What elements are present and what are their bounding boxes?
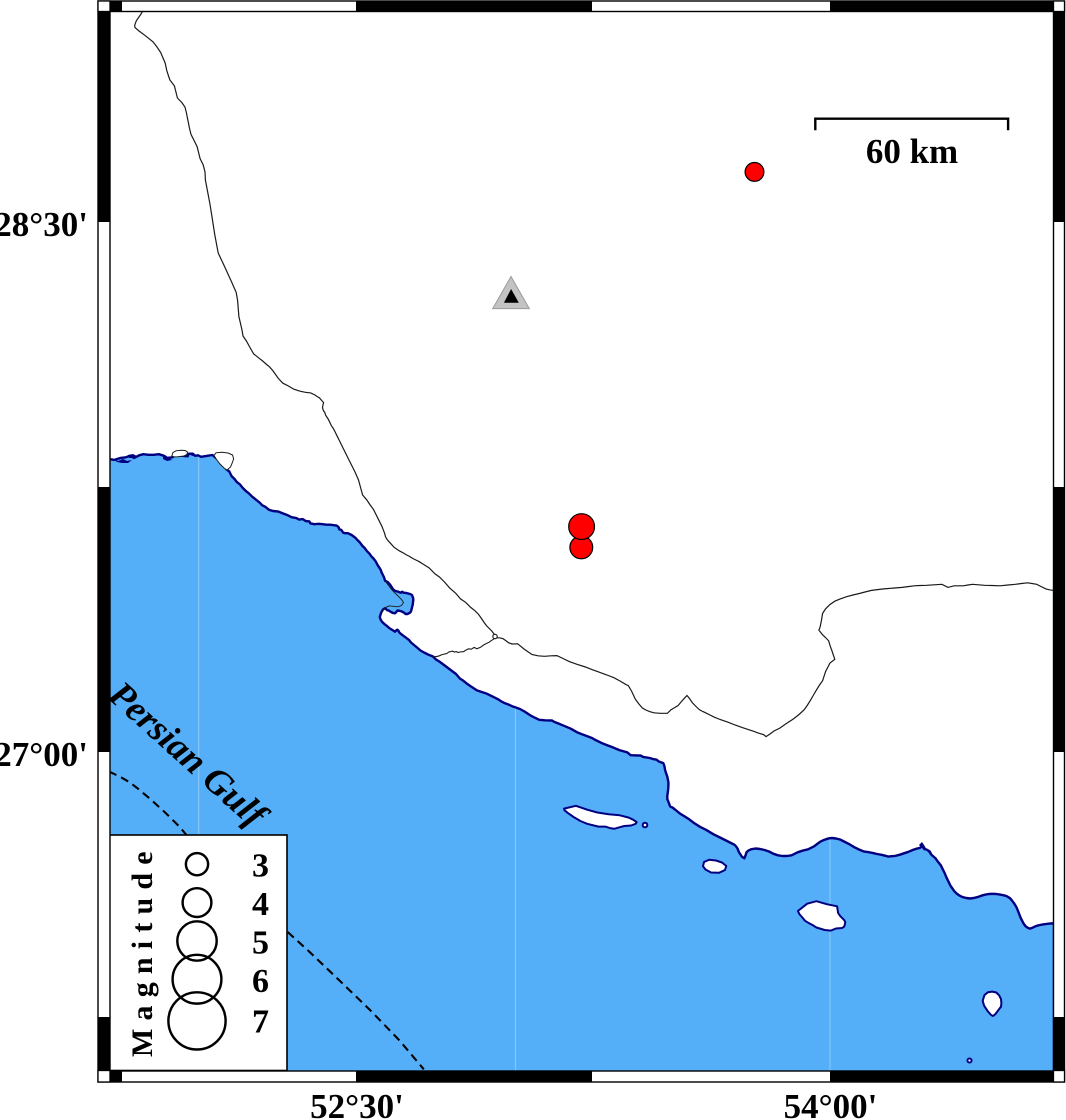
svg-text:60 km: 60 km <box>866 132 958 171</box>
svg-text:54°00': 54°00' <box>784 1087 878 1120</box>
svg-text:3: 3 <box>252 848 269 885</box>
svg-text:28°30': 28°30' <box>0 205 88 244</box>
svg-text:27°00': 27°00' <box>0 735 88 774</box>
svg-text:5: 5 <box>252 925 269 962</box>
svg-text:7: 7 <box>252 1004 269 1041</box>
svg-text:52°30': 52°30' <box>310 1087 404 1120</box>
svg-text:Magnitude: Magnitude <box>126 843 159 1057</box>
svg-text:4: 4 <box>252 886 269 923</box>
svg-text:6: 6 <box>252 963 269 1000</box>
